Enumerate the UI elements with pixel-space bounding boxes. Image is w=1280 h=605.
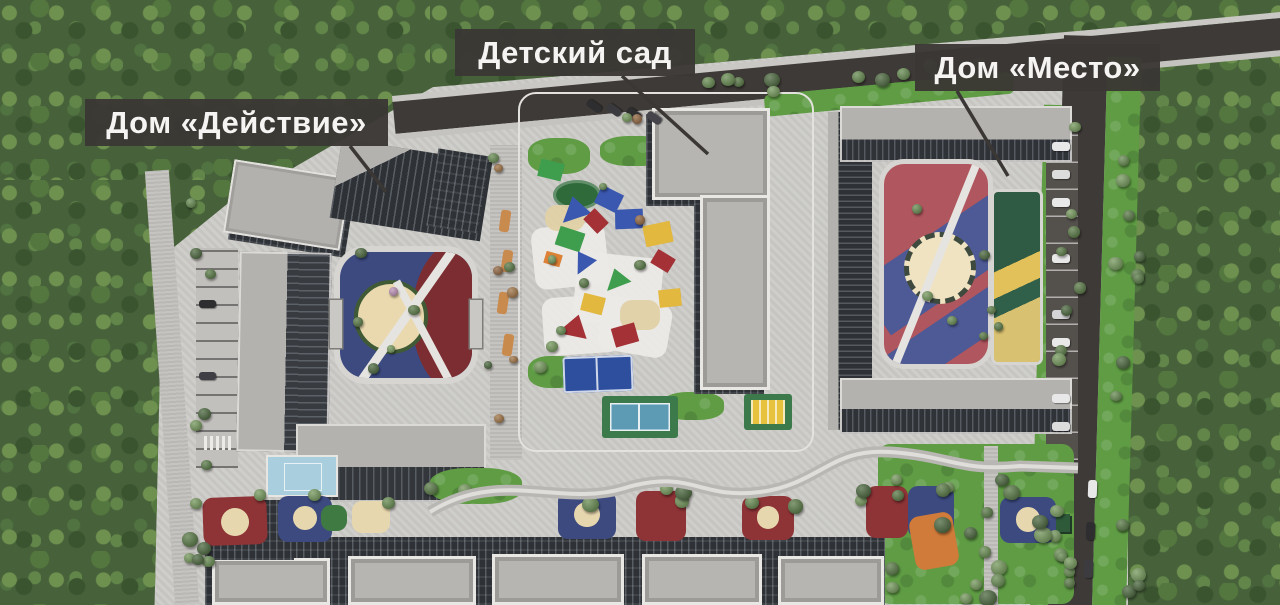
leader-line-detskiy-sad <box>622 76 708 154</box>
promenade-wavy-path-inner <box>430 452 1078 512</box>
leader-line-deystvie <box>350 146 386 192</box>
masterplan-render: Дом «Действие» Детский сад Дом «Место» <box>0 0 1280 605</box>
label-dom-mesto[interactable]: Дом «Место» <box>915 44 1160 91</box>
label-detskiy-sad[interactable]: Детский сад <box>455 29 695 76</box>
leader-line-mesto <box>957 91 1008 176</box>
promenade-wavy-path <box>430 452 1078 512</box>
label-dom-deystvie[interactable]: Дом «Действие» <box>85 99 388 146</box>
